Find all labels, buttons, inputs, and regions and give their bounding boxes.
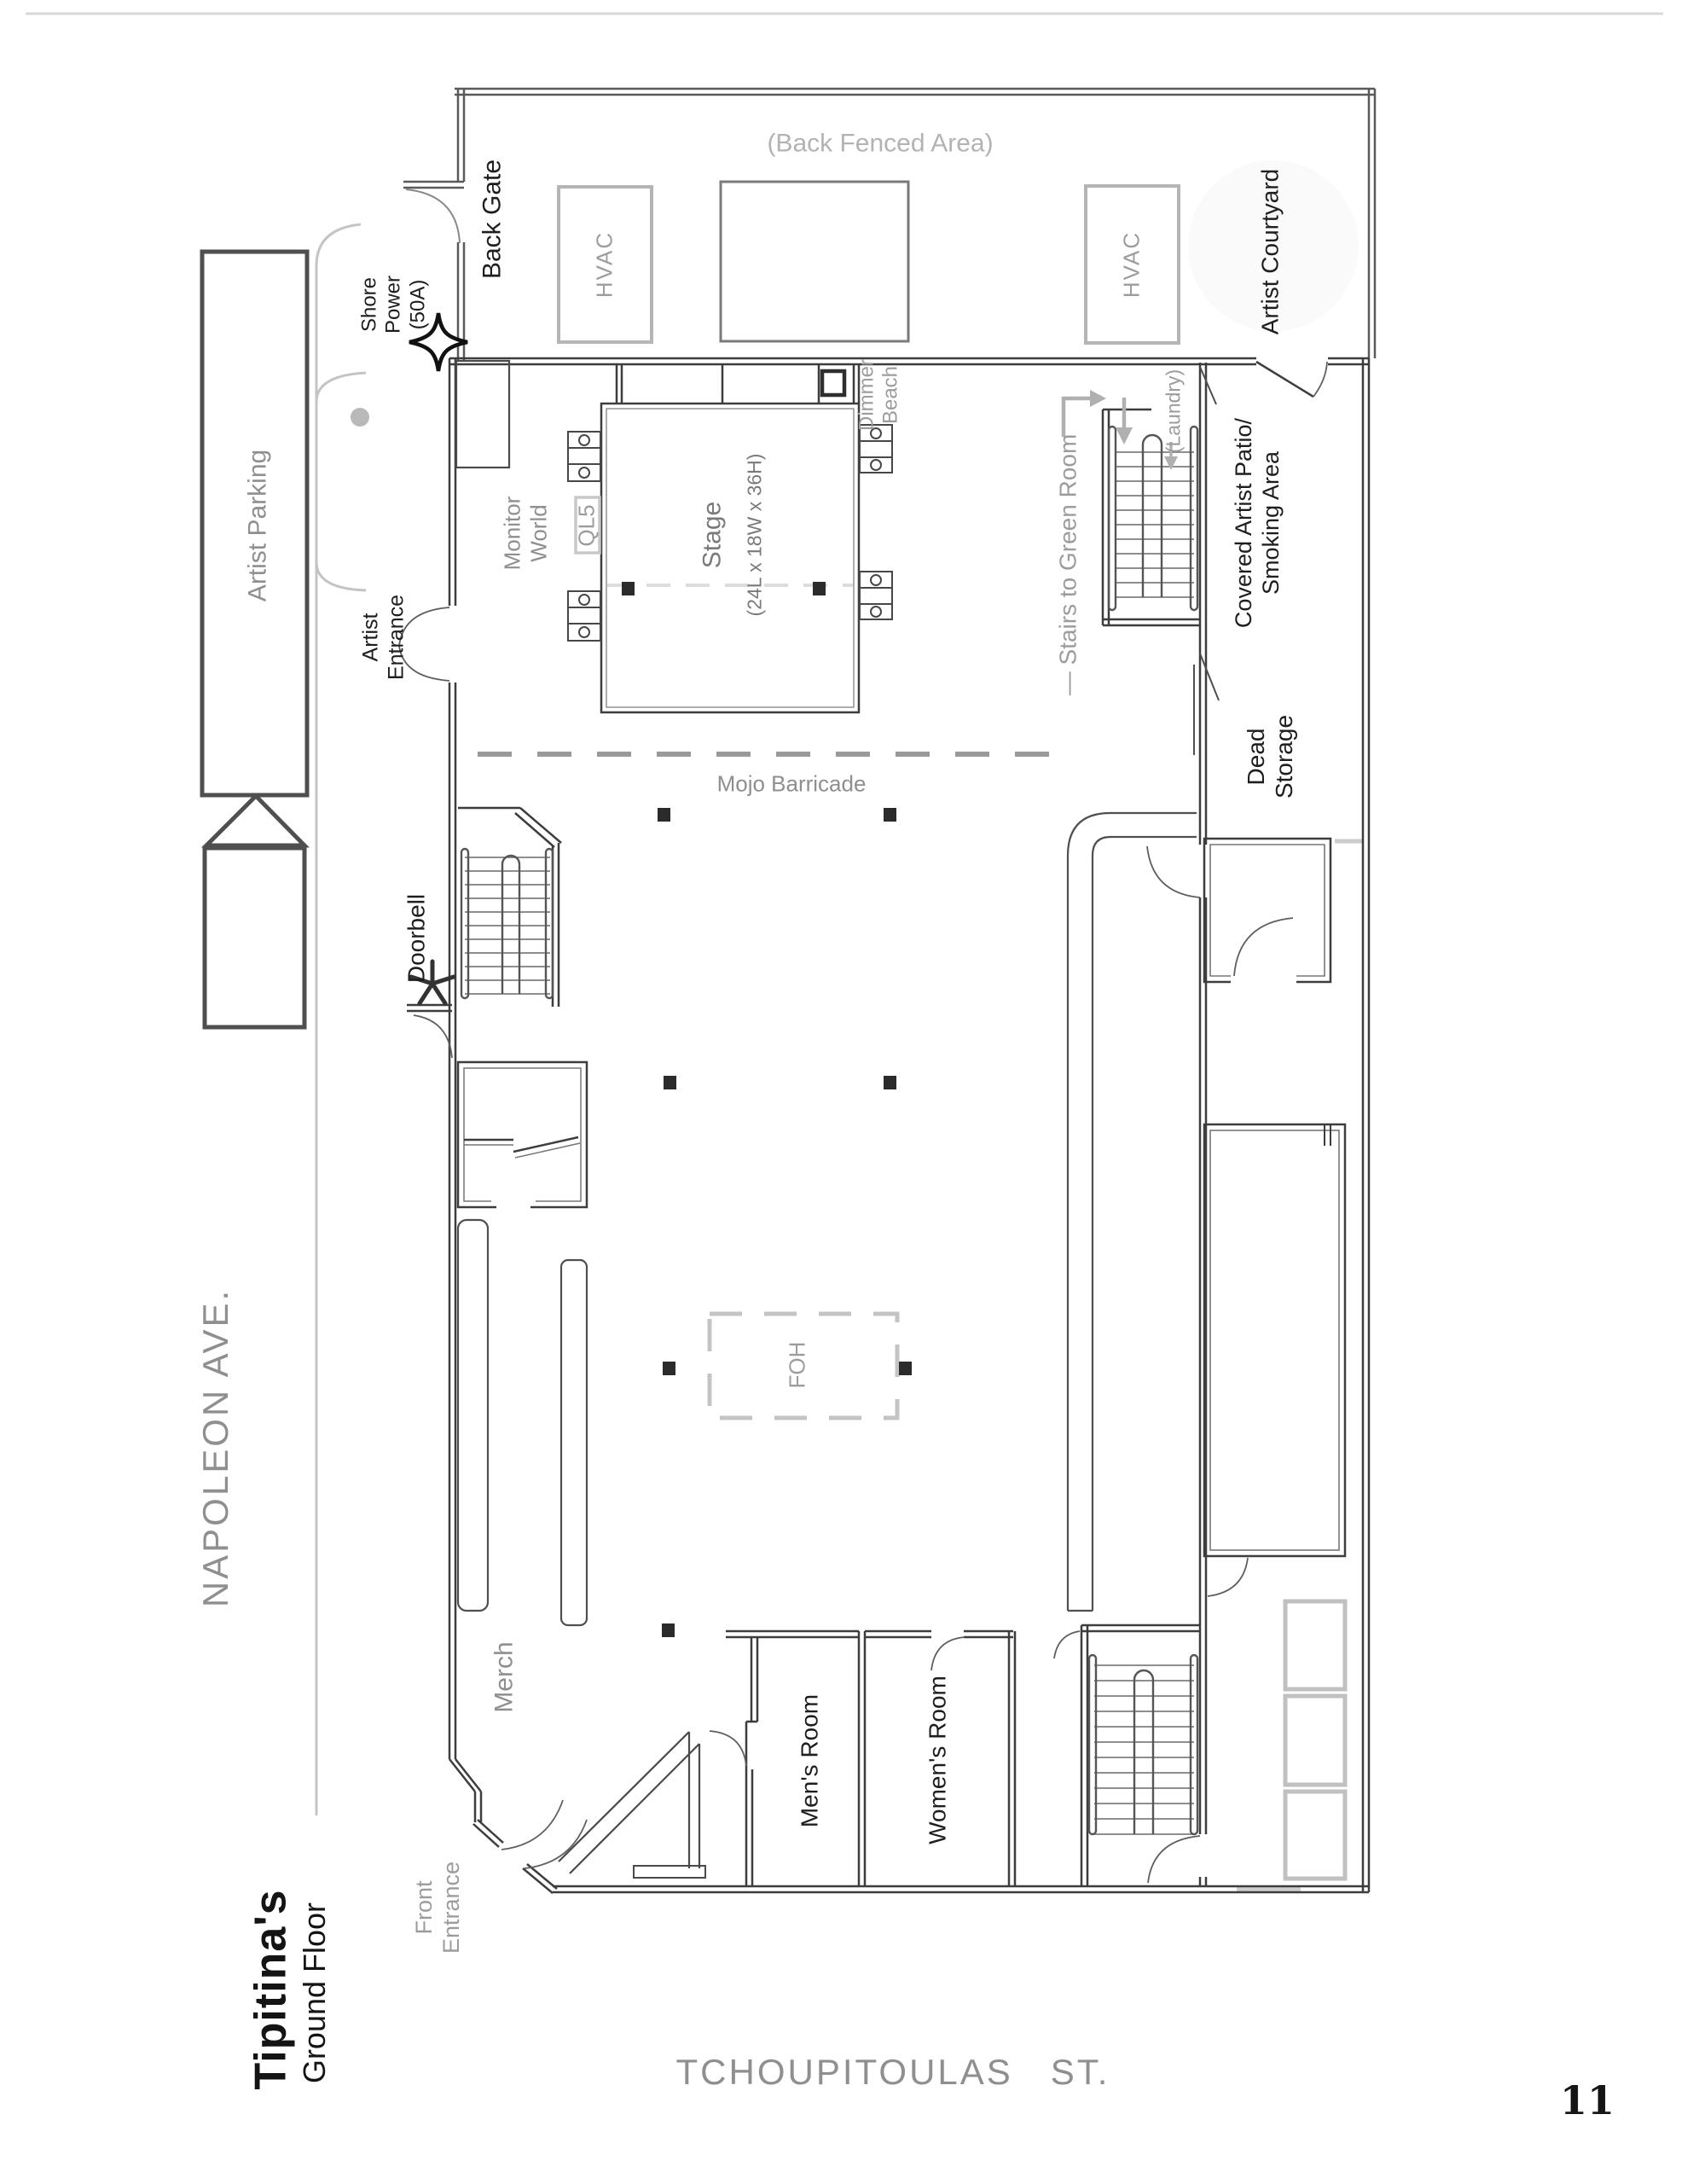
hvac-units <box>559 182 1179 343</box>
mojo-barricade-label: Mojo Barricade <box>717 771 867 798</box>
covered-patio-label: Covered Artist Patio/ Smoking Area <box>1231 418 1285 628</box>
front-entrance-label: Front Entrance <box>411 1862 466 1954</box>
curb-dot <box>351 408 369 427</box>
mens-room-label: Men's Room <box>795 1694 823 1827</box>
vestibule-rooms <box>458 1062 587 1207</box>
green-room-stairs <box>1103 367 1219 755</box>
foh-label: FOH <box>785 1342 811 1389</box>
entrance-ramp <box>559 1732 705 1878</box>
cooler-boxes <box>1285 1601 1345 1879</box>
floorplan-drawing <box>0 0 1687 2184</box>
ql5-label: QL5 <box>574 504 600 546</box>
stage-name: Stage <box>697 454 727 617</box>
left-bar <box>458 1220 587 1625</box>
napoleon-ave-label: NAPOLEON AVE. <box>194 1288 237 1607</box>
floorplan-page: (Back Fenced Area) Back Gate Shore Power… <box>0 0 1687 2184</box>
doorbell-label: Doorbell <box>402 894 430 983</box>
artist-entrance-label: Artist Entrance <box>359 595 409 680</box>
stage-label: Stage (24L x 18W x 36H) <box>681 454 782 617</box>
back-fenced-area-label: (Back Fenced Area) <box>767 128 993 158</box>
artist-parking-shapes <box>202 252 307 1027</box>
doors <box>399 362 1327 1883</box>
artist-courtyard-label: Artist Courtyard <box>1255 169 1284 335</box>
right-bar <box>1068 813 1197 1611</box>
dead-storage-room <box>1204 839 1330 982</box>
monitor-world-closet <box>456 361 509 468</box>
hvac-label-1: HVAC <box>592 231 618 298</box>
right-storage-room <box>1204 1124 1345 1556</box>
stage-dims: (24L x 18W x 36H) <box>744 454 767 617</box>
monitor-world-label: Monitor World <box>499 497 551 571</box>
columns <box>622 582 912 1637</box>
floor-subtitle: Ground Floor <box>297 1902 333 2083</box>
back-gate-label: Back Gate <box>477 160 507 279</box>
dead-storage-label: Dead Storage <box>1242 715 1298 799</box>
tchoupitoulas-st-label: TCHOUPITOULAS ST. <box>676 2051 1110 2094</box>
shore-power-label: Shore Power (50A) <box>358 276 431 334</box>
artist-parking-label: Artist Parking <box>242 450 272 601</box>
womens-room-label: Women's Room <box>923 1676 951 1844</box>
laundry-label: (Laundry) <box>1162 369 1185 453</box>
stairs-green-room-label: — Stairs to Green Room <box>1053 434 1081 696</box>
merch-label: Merch <box>489 1641 519 1712</box>
hvac-label-2: HVAC <box>1119 231 1145 298</box>
page-number: 11 <box>1560 2077 1615 2123</box>
dimmer-beach-label: Dimmer Beach <box>855 359 904 431</box>
bottom-right-stairs <box>1054 1631 1197 1834</box>
venue-title: Tipitina's <box>245 1889 297 2089</box>
